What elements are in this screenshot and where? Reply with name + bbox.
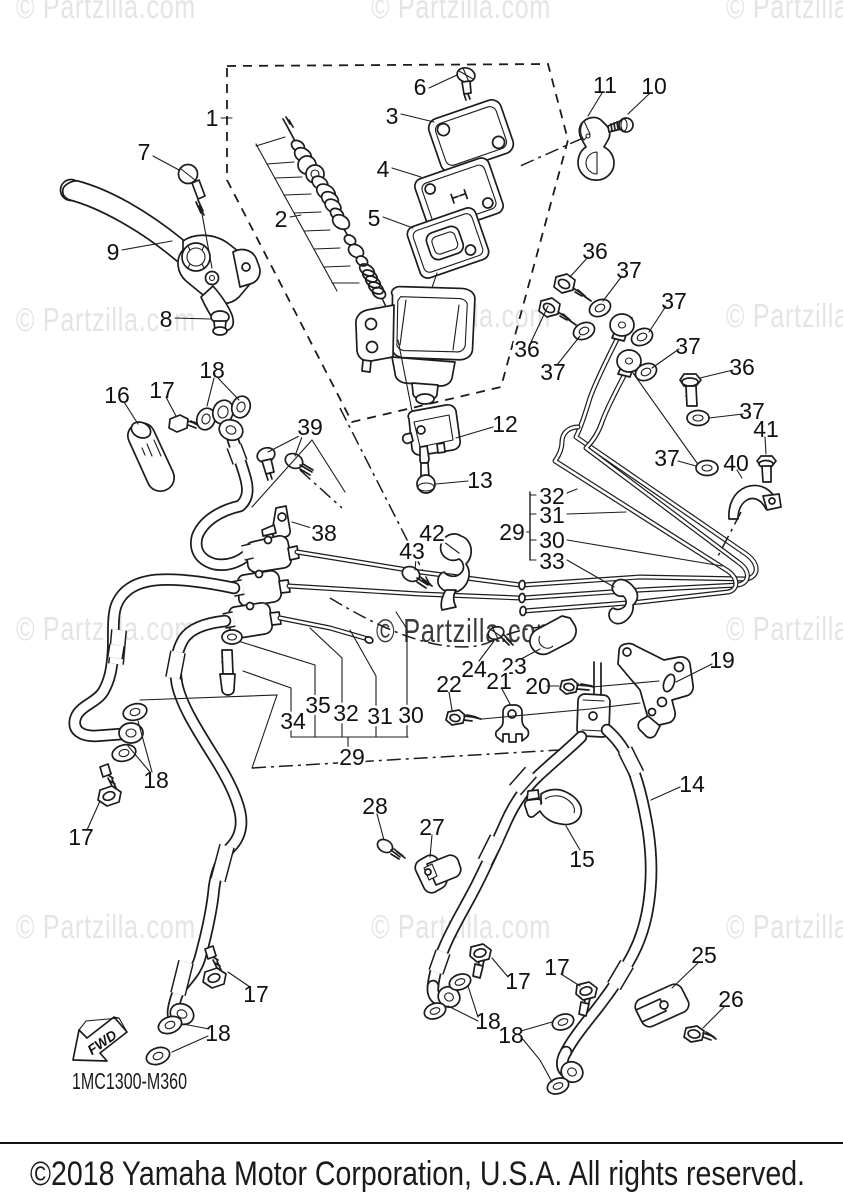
svg-text:29: 29 <box>339 744 365 770</box>
svg-text:37: 37 <box>661 288 687 314</box>
svg-text:28: 28 <box>362 793 388 819</box>
svg-text:© Partzilla.com: © Partzilla.com <box>16 610 196 647</box>
svg-text:© Partzilla.com: © Partzilla.com <box>371 0 551 25</box>
svg-text:35: 35 <box>305 692 331 718</box>
svg-text:8: 8 <box>160 306 173 332</box>
svg-text:30: 30 <box>398 702 424 728</box>
svg-text:18: 18 <box>199 357 225 383</box>
svg-text:43: 43 <box>399 538 425 564</box>
svg-text:© Partzilla.com: © Partzilla.com <box>726 0 843 25</box>
svg-text:26: 26 <box>718 986 744 1012</box>
svg-text:25: 25 <box>691 942 717 968</box>
svg-text:36: 36 <box>582 238 608 264</box>
svg-text:4: 4 <box>377 156 390 182</box>
svg-text:15: 15 <box>569 846 595 872</box>
svg-text:3: 3 <box>386 103 399 129</box>
svg-text:10: 10 <box>641 73 667 99</box>
svg-text:18: 18 <box>143 767 169 793</box>
svg-text:18: 18 <box>475 1008 501 1034</box>
svg-text:37: 37 <box>654 445 680 471</box>
svg-text:11: 11 <box>593 72 617 98</box>
svg-text:6: 6 <box>414 74 427 100</box>
svg-text:18: 18 <box>205 1020 231 1046</box>
svg-text:31: 31 <box>539 502 565 528</box>
svg-text:21: 21 <box>486 668 512 694</box>
svg-text:40: 40 <box>723 450 749 476</box>
svg-text:© Partzilla.com: © Partzilla.com <box>726 610 843 647</box>
svg-text:33: 33 <box>539 548 565 574</box>
svg-text:24: 24 <box>461 656 487 682</box>
svg-text:7: 7 <box>138 139 151 165</box>
svg-text:9: 9 <box>107 239 120 265</box>
svg-text:37: 37 <box>540 359 566 385</box>
svg-text:34: 34 <box>280 708 306 734</box>
svg-text:2: 2 <box>275 206 288 232</box>
svg-text:17: 17 <box>505 968 531 994</box>
svg-text:1: 1 <box>206 105 219 131</box>
svg-text:14: 14 <box>679 771 705 797</box>
svg-text:29: 29 <box>499 519 525 545</box>
svg-text:© Partzilla.com: © Partzilla.com <box>726 908 843 945</box>
svg-text:© Partzilla.com: © Partzilla.com <box>16 908 196 945</box>
svg-text:36: 36 <box>729 354 755 380</box>
svg-text:37: 37 <box>675 333 701 359</box>
svg-text:12: 12 <box>492 411 518 437</box>
svg-text:© Partzilla.com: © Partzilla.com <box>726 297 843 334</box>
svg-text:© Partzilla.com: © Partzilla.com <box>16 0 196 25</box>
svg-text:19: 19 <box>709 647 735 673</box>
svg-text:5: 5 <box>368 205 381 231</box>
svg-text:13: 13 <box>467 467 493 493</box>
svg-text:39: 39 <box>297 414 323 440</box>
svg-text:18: 18 <box>498 1022 524 1048</box>
svg-text:41: 41 <box>753 416 779 442</box>
svg-text:32: 32 <box>333 700 359 726</box>
svg-text:36: 36 <box>514 336 540 362</box>
svg-text:31: 31 <box>367 703 393 729</box>
svg-text:38: 38 <box>311 520 337 546</box>
svg-text:17: 17 <box>149 377 175 403</box>
svg-text:17: 17 <box>544 954 570 980</box>
svg-text:©2018 Yamaha Motor Corporation: ©2018 Yamaha Motor Corporation, U.S.A. A… <box>30 1155 805 1193</box>
svg-text:1MC1300-M360: 1MC1300-M360 <box>72 1068 187 1094</box>
svg-text:17: 17 <box>68 824 94 850</box>
